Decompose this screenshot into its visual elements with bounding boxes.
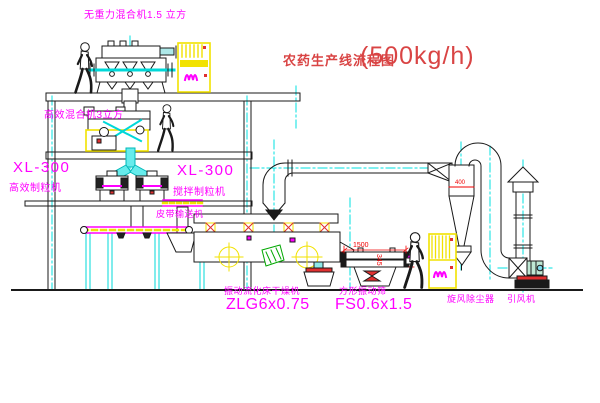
fan-label: 引风机 — [507, 295, 536, 304]
exhaust-duct — [263, 160, 452, 220]
vibrating-sieve-machine — [341, 246, 414, 286]
sieve-length-dimension: 1500 — [353, 242, 369, 249]
cyclone-label: 旋风除尘器 — [447, 295, 495, 304]
granulator-right-name-label: 搅拌制粒机 — [173, 188, 226, 198]
control-cabinet-top — [178, 43, 210, 92]
pesticide-line-flow-diagram: 无重力混合机1.5 立方 农药生产线流程图 (500kg/h) 高效混合机3立方… — [0, 0, 600, 403]
induced-draft-fan-machine — [509, 258, 549, 288]
gravity-mixer-machine — [88, 41, 176, 103]
high-eff-mixer-label: 高效混合机3立方 — [44, 111, 124, 121]
cyclone-diameter-dimension: 400 — [455, 180, 465, 186]
granulator-right-model-label: XL-300 — [177, 163, 234, 178]
person-figure-2 — [158, 105, 173, 151]
sieve-height-dimension: 345 — [375, 254, 382, 266]
diagram-capacity: (500kg/h) — [360, 44, 475, 69]
flex-mounts — [206, 223, 329, 232]
sieve-name-label: 方形振动筛 — [339, 287, 387, 296]
granulator-machines — [96, 171, 168, 201]
sieve-model-label: FS0.6x1.5 — [335, 297, 412, 313]
gravity-mixer-label: 无重力混合机1.5 立方 — [84, 11, 187, 21]
high-efficiency-mixer-machine — [84, 101, 150, 151]
granulator-left-model-label: XL-300 — [13, 160, 70, 175]
belt-conveyor-label: 皮带输送机 — [156, 210, 204, 219]
granulator-left-name-label: 高效制粒机 — [9, 184, 62, 194]
control-cabinet-bottom — [429, 234, 456, 288]
dryer-model-label: ZLG6x0.75 — [226, 297, 310, 313]
fluid-bed-dryer-machine — [167, 214, 354, 286]
dryer-name-label: 振动流化床干燥机 — [224, 287, 300, 296]
